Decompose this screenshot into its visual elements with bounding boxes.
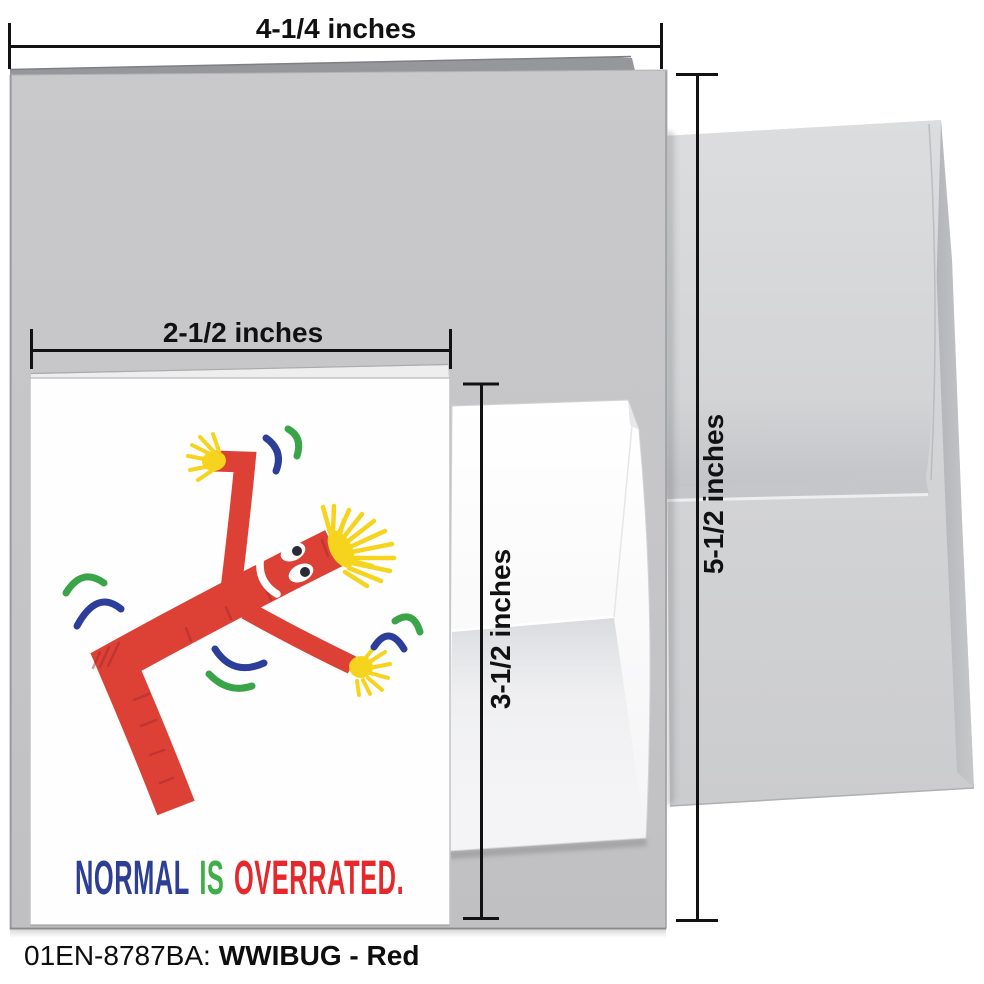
slogan-word-normal: NORMAL xyxy=(75,855,190,903)
slogan-word-overrated: OVERRATED. xyxy=(234,855,404,903)
small-envelope xyxy=(449,400,650,859)
product-sku: 01EN-8787BA: xyxy=(24,940,211,971)
slogan-word-is: IS xyxy=(200,855,225,903)
outer-card-width-label: 4-1/4 inches xyxy=(256,13,416,45)
inner-card-height-label: 3-1/2 inches xyxy=(485,549,517,709)
mockup-graphics xyxy=(0,0,984,984)
product-caption: 01EN-8787BA:WWIBUG - Red xyxy=(24,940,419,972)
outer-card-height-label: 5-1/2 inches xyxy=(698,414,730,574)
small-note-card xyxy=(30,365,450,926)
greeting-card-product-mockup: 4-1/4 inches 2-1/2 inches 5-1/2 inches 3… xyxy=(0,0,984,984)
product-variant-name: WWIBUG - Red xyxy=(219,940,420,971)
note-card-slogan: NORMAL IS OVERRATED. xyxy=(0,855,590,903)
small-envelope-flap-shade xyxy=(449,618,646,851)
inner-card-width-label: 2-1/2 inches xyxy=(163,317,323,349)
